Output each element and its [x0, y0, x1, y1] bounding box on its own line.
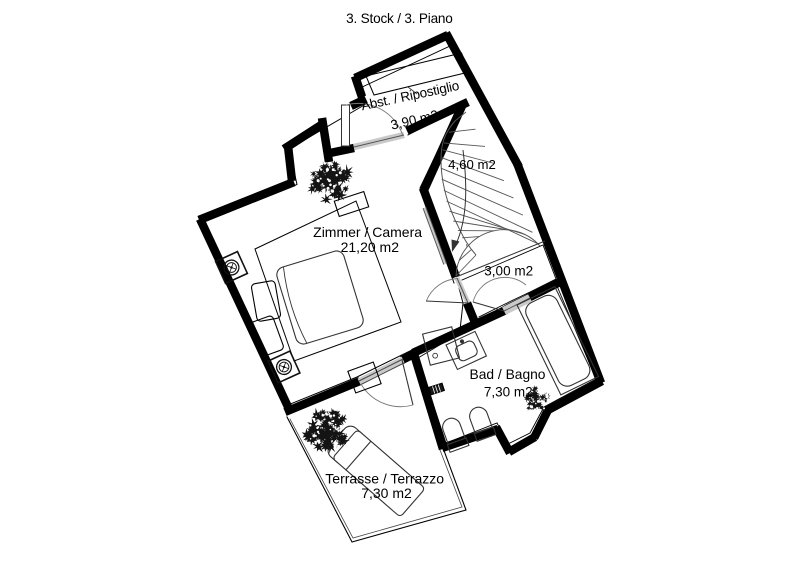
svg-text:4,60 m2: 4,60 m2 [448, 157, 496, 172]
svg-text:3,00 m2: 3,00 m2 [484, 264, 533, 279]
svg-text:7,30 m2: 7,30 m2 [361, 485, 412, 501]
svg-text:Zimmer / Camera: Zimmer / Camera [313, 224, 422, 240]
svg-text:Terrasse / Terrazzo: Terrasse / Terrazzo [325, 470, 444, 486]
svg-text:Bad / Bagno: Bad / Bagno [470, 367, 546, 382]
svg-text:21,20 m2: 21,20 m2 [341, 239, 400, 255]
svg-text:3. Stock / 3. Piano: 3. Stock / 3. Piano [346, 11, 453, 26]
svg-text:7,30 m2: 7,30 m2 [484, 385, 533, 400]
